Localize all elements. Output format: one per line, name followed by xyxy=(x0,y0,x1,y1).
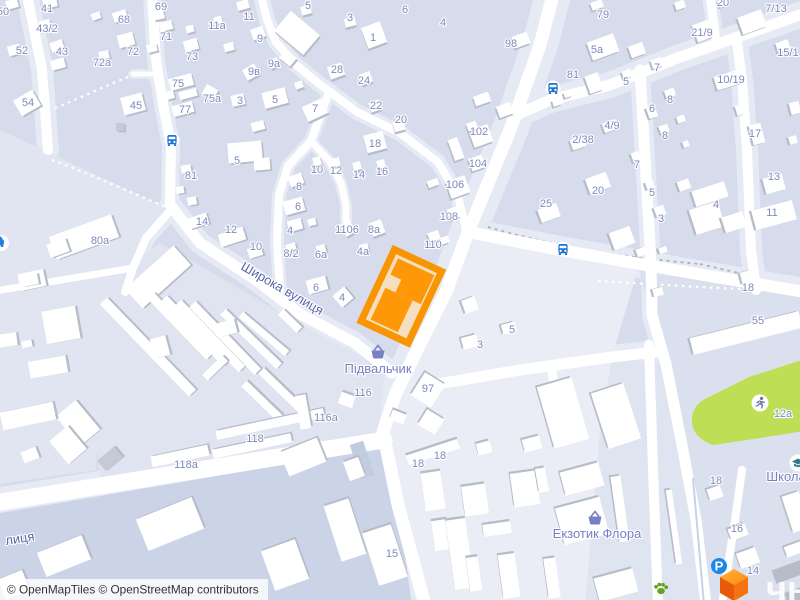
svg-text:3: 3 xyxy=(237,95,243,107)
svg-text:5: 5 xyxy=(305,0,311,12)
svg-text:25: 25 xyxy=(540,198,552,210)
svg-text:14: 14 xyxy=(353,169,365,181)
svg-text:10/19: 10/19 xyxy=(717,74,745,86)
svg-text:54: 54 xyxy=(22,97,34,109)
svg-text:21/9: 21/9 xyxy=(691,27,712,39)
svg-text:81: 81 xyxy=(567,69,579,81)
svg-text:68: 68 xyxy=(118,14,130,26)
svg-text:69: 69 xyxy=(155,1,167,13)
svg-text:6: 6 xyxy=(313,282,319,294)
svg-text:18: 18 xyxy=(742,282,754,294)
svg-text:Екзотик Флора: Екзотик Флора xyxy=(553,526,642,541)
svg-text:8: 8 xyxy=(296,181,302,193)
svg-text:9в: 9в xyxy=(248,66,260,78)
svg-text:7/13: 7/13 xyxy=(765,3,786,15)
svg-text:5a: 5a xyxy=(591,44,604,56)
svg-text:9: 9 xyxy=(257,33,263,45)
svg-text:11a: 11a xyxy=(208,20,226,32)
svg-text:77: 77 xyxy=(179,104,191,116)
svg-text:10: 10 xyxy=(311,164,323,176)
svg-text:Школа: Школа xyxy=(766,469,800,484)
svg-text:2/38: 2/38 xyxy=(572,134,593,146)
svg-text:104: 104 xyxy=(469,158,487,170)
svg-text:11: 11 xyxy=(766,207,777,219)
svg-text:73: 73 xyxy=(186,51,198,63)
svg-text:24: 24 xyxy=(358,75,370,87)
svg-text:116: 116 xyxy=(354,387,372,399)
svg-text:5: 5 xyxy=(272,94,278,106)
svg-text:80a: 80a xyxy=(91,235,110,247)
svg-text:14: 14 xyxy=(196,216,208,228)
svg-text:16: 16 xyxy=(376,166,388,178)
svg-text:106: 106 xyxy=(446,179,464,191)
svg-text:28: 28 xyxy=(331,64,343,76)
svg-text:20: 20 xyxy=(592,185,604,197)
svg-text:12: 12 xyxy=(225,224,237,236)
svg-text:10: 10 xyxy=(250,241,262,253)
svg-text:118: 118 xyxy=(246,433,264,445)
svg-text:43: 43 xyxy=(56,46,68,58)
svg-text:5: 5 xyxy=(509,324,515,336)
svg-text:75a: 75a xyxy=(203,93,222,105)
svg-text:4/9: 4/9 xyxy=(604,120,619,132)
svg-text:97: 97 xyxy=(422,383,434,395)
svg-text:4: 4 xyxy=(713,199,719,211)
svg-text:9a: 9a xyxy=(268,58,281,70)
svg-text:110: 110 xyxy=(424,239,442,251)
svg-text:1106: 1106 xyxy=(335,224,359,236)
svg-text:98: 98 xyxy=(505,38,517,50)
svg-text:3: 3 xyxy=(347,12,353,24)
svg-text:43/2: 43/2 xyxy=(36,23,57,35)
svg-text:6: 6 xyxy=(649,103,655,115)
svg-text:116a: 116a xyxy=(314,412,339,424)
svg-text:8a: 8a xyxy=(368,224,381,236)
svg-text:5: 5 xyxy=(234,155,240,167)
svg-text:50: 50 xyxy=(0,6,9,18)
svg-text:3: 3 xyxy=(477,339,483,351)
svg-text:52: 52 xyxy=(16,45,28,57)
svg-text:15: 15 xyxy=(386,548,398,560)
svg-text:5: 5 xyxy=(649,187,655,199)
svg-text:P: P xyxy=(715,559,724,574)
svg-text:© OpenMapTiles © OpenStreetMap: © OpenMapTiles © OpenStreetMap contribut… xyxy=(7,583,259,597)
svg-text:6a: 6a xyxy=(315,249,328,261)
svg-text:18: 18 xyxy=(412,458,424,470)
svg-text:13: 13 xyxy=(768,171,780,183)
svg-text:4a: 4a xyxy=(357,246,370,258)
svg-text:7: 7 xyxy=(654,62,660,74)
svg-text:18: 18 xyxy=(434,450,446,462)
svg-text:79: 79 xyxy=(597,9,609,21)
svg-text:Підвальчик: Підвальчик xyxy=(344,361,411,376)
svg-text:11: 11 xyxy=(243,11,254,23)
svg-text:20: 20 xyxy=(717,0,729,9)
svg-text:4: 4 xyxy=(287,225,293,237)
svg-text:4: 4 xyxy=(339,292,345,304)
svg-text:118a: 118a xyxy=(174,459,199,471)
svg-text:14: 14 xyxy=(747,565,759,577)
svg-text:108: 108 xyxy=(440,211,458,223)
svg-text:72: 72 xyxy=(127,46,139,58)
svg-text:18: 18 xyxy=(710,475,722,487)
svg-text:20: 20 xyxy=(395,114,407,126)
svg-text:3: 3 xyxy=(658,213,664,225)
svg-text:чн: чн xyxy=(766,568,800,600)
svg-text:8/2: 8/2 xyxy=(283,248,298,260)
svg-text:7: 7 xyxy=(312,103,318,115)
svg-text:45: 45 xyxy=(130,100,142,112)
svg-text:6: 6 xyxy=(295,201,301,213)
svg-text:12a: 12a xyxy=(774,408,793,420)
svg-text:1: 1 xyxy=(370,32,376,44)
svg-text:16: 16 xyxy=(731,523,743,535)
svg-text:5: 5 xyxy=(623,76,629,88)
svg-text:18: 18 xyxy=(369,138,381,150)
svg-text:41: 41 xyxy=(41,3,53,15)
svg-text:8: 8 xyxy=(662,130,668,142)
svg-text:72a: 72a xyxy=(93,57,112,69)
svg-text:6: 6 xyxy=(402,4,408,16)
svg-text:102: 102 xyxy=(470,126,488,138)
svg-text:8: 8 xyxy=(667,94,673,106)
svg-text:4: 4 xyxy=(440,17,446,29)
svg-text:75: 75 xyxy=(172,78,184,90)
svg-text:81: 81 xyxy=(185,170,197,182)
svg-text:17: 17 xyxy=(749,128,761,140)
svg-text:7: 7 xyxy=(634,159,640,171)
svg-text:12: 12 xyxy=(330,165,342,177)
svg-text:15/1: 15/1 xyxy=(777,47,798,59)
svg-text:55: 55 xyxy=(752,315,764,327)
svg-text:22: 22 xyxy=(370,100,382,112)
svg-text:71: 71 xyxy=(160,31,172,43)
